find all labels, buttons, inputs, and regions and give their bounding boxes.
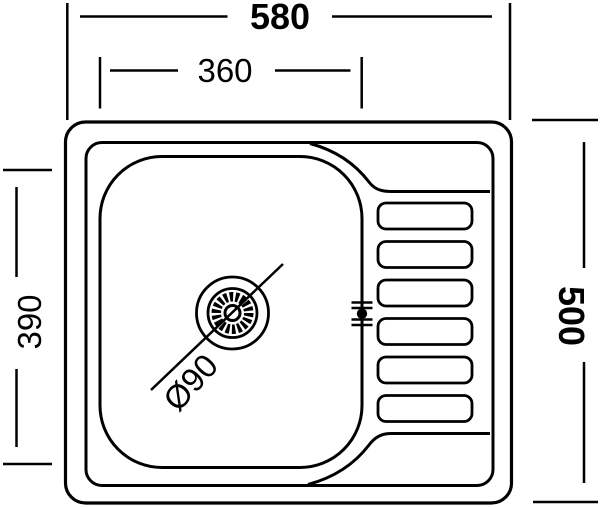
dimension-overall-width: 580 [67, 0, 510, 120]
sink-outer-edge [66, 122, 512, 503]
sink-body [66, 122, 512, 503]
drainboard-slot [378, 396, 472, 422]
drainboard-slots [378, 203, 472, 422]
bowl-width-label: 360 [197, 52, 252, 89]
drainboard-divider-bottom [308, 434, 490, 485]
drainboard-slot [378, 203, 472, 229]
overall-width-label: 580 [250, 0, 310, 37]
dimension-overall-depth: 500 [532, 120, 598, 502]
drainboard-slot [378, 242, 472, 268]
sink-drawing-canvas: Ø90 580 360 390 [0, 0, 600, 508]
drain-diameter-label: Ø90 [156, 347, 225, 418]
dimension-bowl-depth: 390 [3, 170, 52, 464]
overflow-dot [357, 309, 367, 319]
overall-depth-label: 500 [551, 286, 592, 346]
drainboard-slot [378, 319, 472, 345]
drainboard-slot [378, 357, 472, 383]
drain-assembly: Ø90 [151, 264, 283, 418]
drainboard-slot [378, 280, 472, 306]
sink-technical-drawing: Ø90 580 360 390 [0, 0, 600, 508]
dimension-bowl-width: 360 [100, 52, 362, 109]
bowl-depth-label: 390 [11, 294, 48, 349]
